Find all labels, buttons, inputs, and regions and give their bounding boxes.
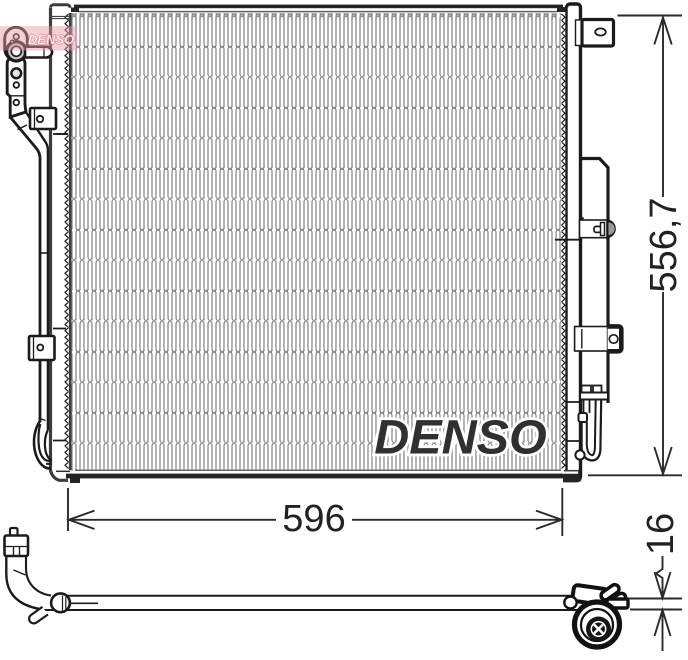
svg-text:DENSO: DENSO xyxy=(28,32,74,47)
svg-text:596: 596 xyxy=(282,498,345,540)
svg-text:16: 16 xyxy=(640,513,682,555)
svg-text:556,7: 556,7 xyxy=(643,197,685,292)
svg-text:DENSO: DENSO xyxy=(374,411,546,465)
